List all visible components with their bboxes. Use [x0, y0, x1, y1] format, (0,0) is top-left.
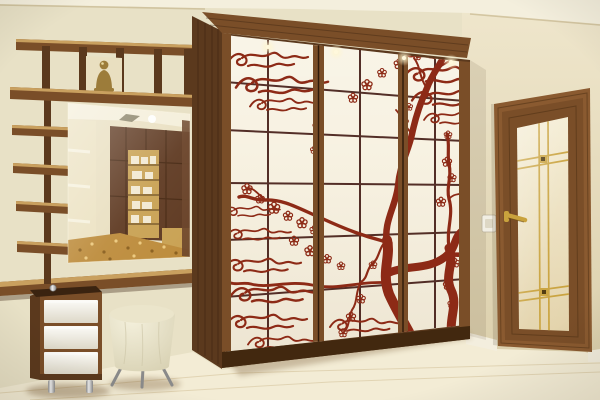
scene-canvas — [0, 0, 600, 400]
hallway-photo — [0, 0, 600, 400]
vignette — [0, 0, 600, 400]
